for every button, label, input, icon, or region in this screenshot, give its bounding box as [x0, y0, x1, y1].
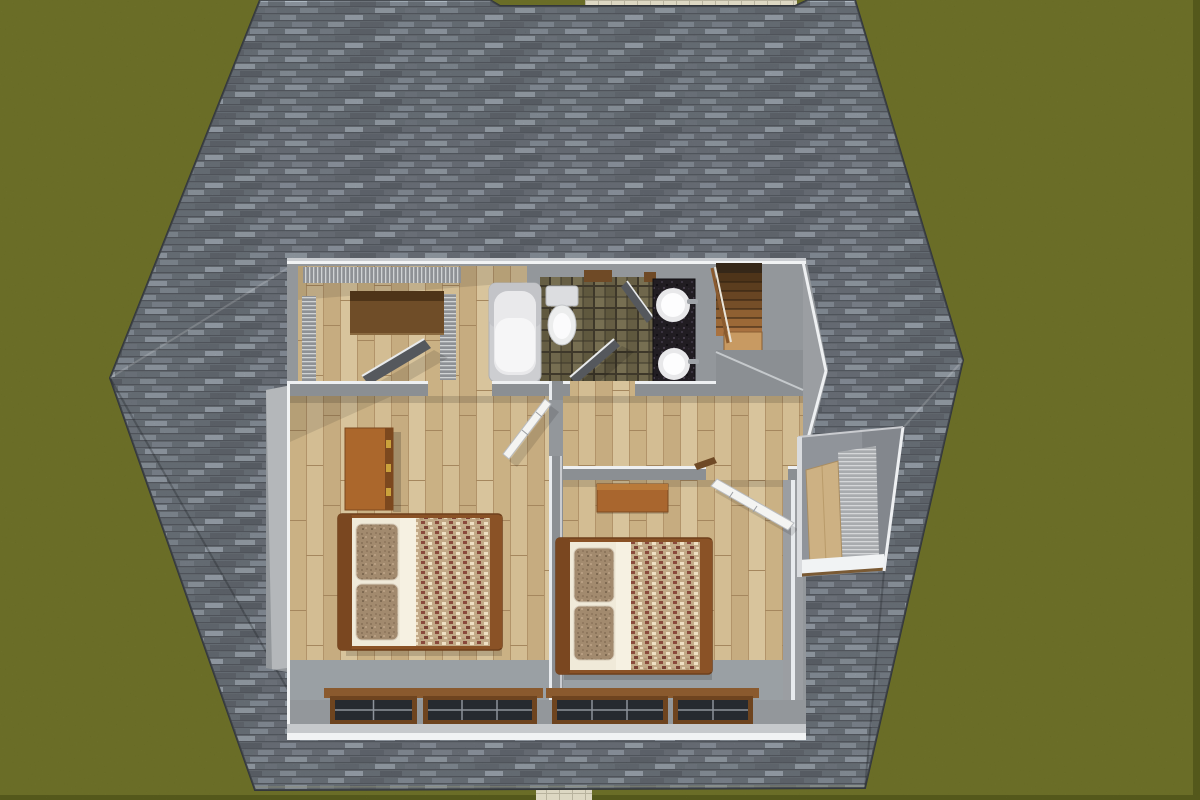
dresser	[345, 428, 401, 512]
render-canvas	[0, 0, 1200, 800]
pillow	[574, 548, 614, 602]
window-1	[330, 696, 417, 724]
south-wall-outer	[287, 724, 806, 733]
pillow	[356, 524, 398, 580]
pillow	[356, 584, 398, 640]
faucet-1	[687, 299, 698, 304]
dormer-window-nook	[797, 427, 903, 577]
vanity-counter	[653, 279, 699, 383]
headboard	[556, 538, 570, 674]
toilet	[546, 286, 578, 345]
window-3	[552, 696, 668, 724]
bed-right	[556, 538, 712, 680]
hallway-floor	[563, 396, 803, 466]
pillow	[574, 606, 614, 660]
desk	[597, 484, 668, 514]
footboard	[700, 540, 712, 672]
west-wall-cut-edge	[287, 384, 290, 736]
footboard	[490, 516, 502, 648]
upper-floor-interior	[260, 255, 830, 745]
bathroom	[489, 270, 699, 390]
faucet-2	[688, 359, 699, 364]
window-2	[423, 696, 537, 724]
eave-edge	[255, 786, 865, 787]
comforter	[631, 542, 702, 670]
bathtub	[489, 283, 541, 382]
headboard	[338, 514, 352, 650]
comforter	[416, 518, 492, 646]
south-wall-cut-edge	[287, 733, 806, 740]
dormer-blind-screen	[838, 446, 879, 560]
window-4	[673, 696, 753, 724]
bed-left	[338, 514, 502, 656]
bath-door-header	[584, 270, 612, 282]
